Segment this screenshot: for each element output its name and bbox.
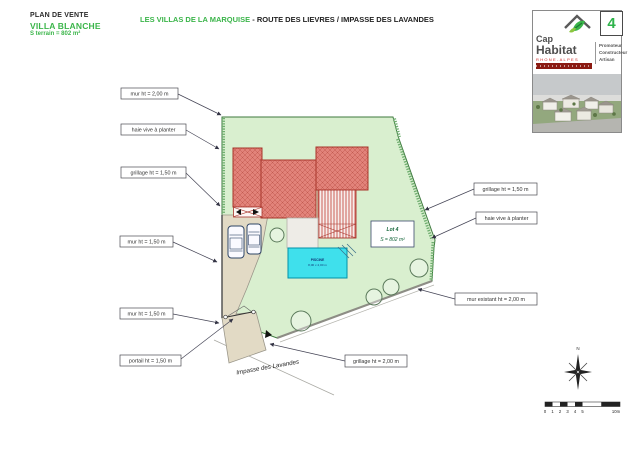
tree [366, 289, 382, 305]
tree [291, 311, 311, 331]
lot-surface-text: S = 802 m² [380, 237, 405, 243]
tree [410, 259, 428, 277]
terrace-paved [287, 218, 318, 248]
building-main-body [261, 160, 316, 218]
label-haie-right: haie vive à planter [476, 212, 537, 224]
pool-dimensions: 8,00 x 4,00 m [308, 263, 327, 267]
car [247, 224, 261, 254]
building-left-wing [233, 148, 262, 207]
svg-text:mur ht = 2,00 m: mur ht = 2,00 m [131, 92, 169, 98]
svg-text:mur ht = 1,50 m: mur ht = 1,50 m [128, 240, 166, 246]
svg-text:mur existant ht = 2,00 m: mur existant ht = 2,00 m [467, 297, 525, 303]
lot-number-text: Lot 4 [387, 227, 399, 233]
label-grillage-left: grillage ht = 1,50 m [121, 167, 186, 178]
car [228, 226, 244, 258]
street-name: Impasse des Lavandes [236, 359, 300, 377]
scale-end-label: 10m [612, 409, 621, 414]
label-mur-150-lower: mur ht = 1,50 m [120, 308, 173, 319]
label-portail: portail ht = 1,50 m [120, 355, 181, 366]
label-mur-150-upper: mur ht = 1,50 m [120, 236, 173, 247]
label-grillage-bottom: grillage ht = 2,00 m [345, 355, 407, 367]
compass-north-label: N [576, 346, 579, 351]
swimming-pool: PISCINE 8,00 x 4,00 m [288, 244, 356, 278]
pool-label: PISCINE [311, 258, 325, 262]
terrace-striped [318, 190, 356, 238]
building-right-wing [316, 147, 368, 190]
label-mur-2m: mur ht = 2,00 m [121, 88, 178, 99]
compass-center [577, 371, 579, 373]
entrance-porch [234, 207, 263, 217]
scale-tick: 4 [574, 409, 577, 414]
svg-text:haie vive à planter: haie vive à planter [485, 216, 529, 222]
label-mur-existant: mur existant ht = 2,00 m [455, 293, 537, 305]
scale-tick: 0 [544, 409, 547, 414]
plan-de-vente-page: PLAN DE VENTE VILLA BLANCHE S terrain = … [0, 0, 640, 453]
svg-text:portail ht = 1,50 m: portail ht = 1,50 m [129, 359, 173, 365]
scale-tick: 1 [551, 409, 554, 414]
scale-bar: 0 1 2 3 4 5 10m [544, 402, 621, 414]
tree [270, 228, 284, 242]
scale-tick: 3 [566, 409, 569, 414]
lot-info-box: Lot 4 S = 802 m² [371, 221, 414, 247]
scale-tick: 2 [559, 409, 562, 414]
label-grillage-right: grillage ht = 1,50 m [474, 183, 537, 195]
compass-rose: N [564, 346, 592, 390]
scale-tick: 5 [581, 409, 584, 414]
label-haie-left: haie vive à planter [121, 124, 186, 135]
svg-text:haie vive à planter: haie vive à planter [132, 128, 176, 134]
svg-text:grillage ht = 1,50 m: grillage ht = 1,50 m [483, 187, 530, 193]
tree [383, 279, 399, 295]
site-plan-drawing: PISCINE 8,00 x 4,00 m [0, 0, 640, 453]
svg-text:mur ht = 1,50 m: mur ht = 1,50 m [128, 312, 166, 318]
svg-text:grillage ht = 2,00 m: grillage ht = 2,00 m [353, 359, 400, 365]
svg-text:grillage ht = 1,50 m: grillage ht = 1,50 m [131, 171, 178, 177]
